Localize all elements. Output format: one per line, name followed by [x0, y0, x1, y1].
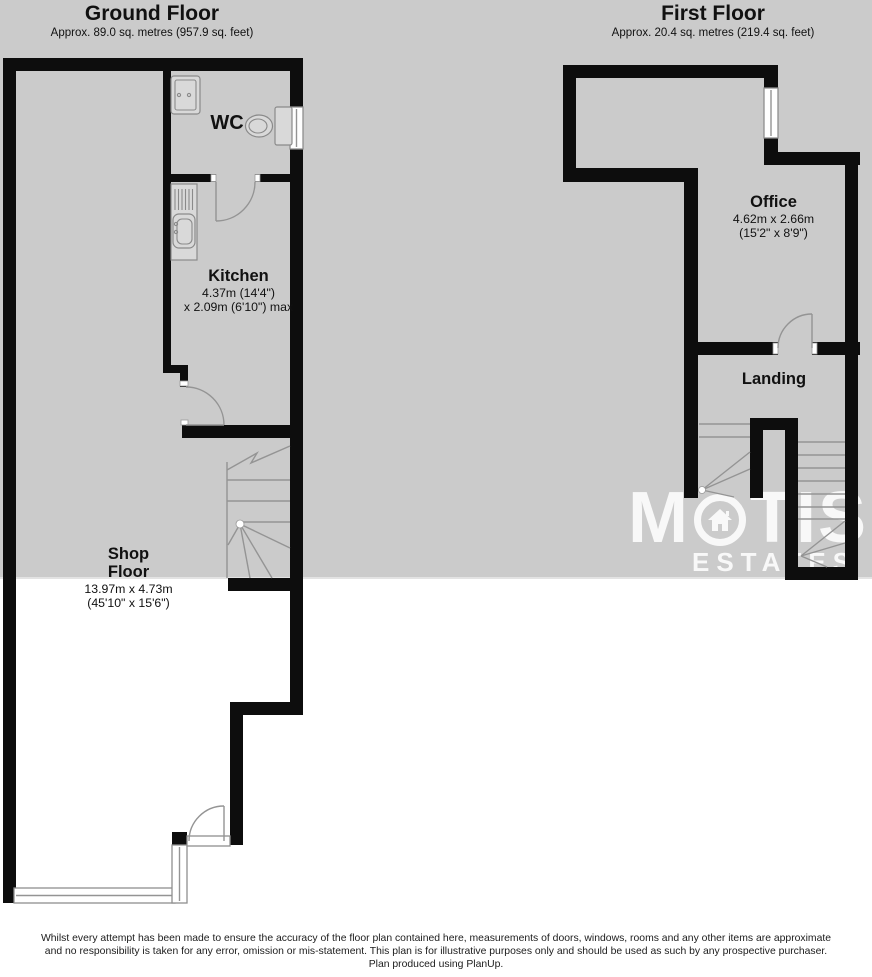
shopfront-window: [14, 845, 187, 903]
room-name: Shop: [56, 545, 201, 563]
room-name: Floor: [56, 563, 201, 581]
wall-segment: [243, 702, 303, 715]
wall-segment: [182, 425, 290, 438]
ground-floor-area: Approx. 89.0 sq. metres (957.9 sq. feet): [30, 27, 274, 40]
wall-segment: [290, 58, 303, 715]
floorplan-drawing: [0, 0, 872, 977]
room-dimensions: 4.62m x 2.66m (15'2" x 8'9"): [701, 213, 846, 241]
dim-line: 4.37m (14'4"): [166, 287, 311, 301]
kitchen-counter-sink: [171, 184, 197, 260]
page-title-ground: Ground Floor: [30, 2, 274, 25]
first-floor-title-block: First Floor Approx. 20.4 sq. metres (219…: [591, 2, 835, 40]
ground-floor-plan: [3, 58, 303, 903]
room-name: Office: [701, 193, 846, 211]
staircase-first-left: [699, 424, 751, 497]
wall-segment: [563, 168, 698, 182]
room-label-landing: Landing: [712, 370, 836, 388]
office-window: [764, 88, 778, 138]
wall-segment: [750, 418, 763, 498]
room-label-office: Office 4.62m x 2.66m (15'2" x 8'9"): [701, 193, 846, 241]
wall-segment: [3, 58, 16, 903]
room-label-wc: WC: [196, 113, 258, 134]
disclaimer-line: Plan produced using PlanUp.: [0, 959, 872, 972]
wc-door: [211, 175, 260, 222]
dim-line: 4.62m x 2.66m: [701, 213, 846, 227]
room-dimensions: 4.37m (14'4") x 2.09m (6'10") max: [166, 287, 311, 315]
wall-segment: [230, 702, 243, 845]
staircase-first-right: [798, 442, 845, 567]
wall-segment: [812, 342, 860, 355]
staircase-ground: [227, 446, 290, 578]
wc-basin: [171, 76, 200, 114]
disclaimer-line: and no responsibility is taken for any e…: [0, 946, 872, 959]
dim-line: 13.97m x 4.73m: [56, 583, 201, 597]
room-name: Kitchen: [166, 267, 311, 285]
first-floor-walls: [563, 65, 860, 580]
wall-segment: [3, 58, 303, 71]
wall-segment: [172, 832, 187, 845]
wall-segment: [785, 424, 798, 580]
first-floor-area: Approx. 20.4 sq. metres (219.4 sq. feet): [591, 27, 835, 40]
room-dimensions: 13.97m x 4.73m (45'10" x 15'6"): [56, 583, 201, 611]
disclaimer-text: Whilst every attempt has been made to en…: [0, 933, 872, 971]
wall-segment: [228, 578, 303, 591]
first-floor-plan: [563, 65, 860, 580]
wall-segment: [684, 168, 698, 498]
room-label-shop-floor: Shop Floor 13.97m x 4.73m (45'10" x 15'6…: [56, 545, 201, 611]
kitchen-door: [180, 381, 224, 425]
floorplan-page: M TIS ESTATES: [0, 0, 872, 977]
wall-segment: [764, 65, 778, 90]
wall-segment: [163, 71, 171, 365]
wall-segment: [785, 567, 858, 580]
room-label-kitchen: Kitchen 4.37m (14'4") x 2.09m (6'10") ma…: [166, 267, 311, 315]
dim-line: (15'2" x 8'9"): [701, 227, 846, 241]
page-title-first: First Floor: [591, 2, 835, 25]
dim-line: (45'10" x 15'6"): [56, 597, 201, 611]
wall-segment: [684, 342, 778, 355]
wall-segment: [171, 174, 216, 182]
wall-segment: [845, 152, 858, 580]
ground-floor-title-block: Ground Floor Approx. 89.0 sq. metres (95…: [30, 2, 274, 40]
dim-line: x 2.09m (6'10") max: [166, 301, 311, 315]
wall-segment: [563, 65, 778, 78]
office-door: [773, 314, 817, 354]
wall-segment: [563, 65, 576, 182]
disclaimer-line: Whilst every attempt has been made to en…: [0, 933, 872, 946]
